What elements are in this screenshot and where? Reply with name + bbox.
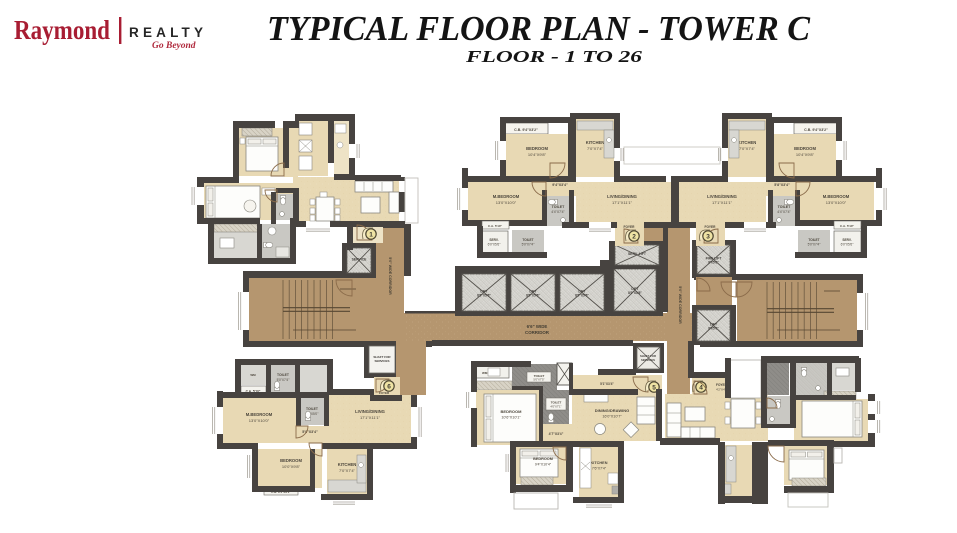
svg-text:C.A. 5'10": C.A. 5'10" <box>488 224 503 228</box>
svg-text:13'0"X10'0": 13'0"X10'0" <box>496 200 517 205</box>
svg-text:10'4"X9'8": 10'4"X9'8" <box>528 152 547 157</box>
svg-text:KITCHEN: KITCHEN <box>338 462 357 467</box>
svg-text:4: 4 <box>699 384 703 391</box>
svg-text:5: 5 <box>652 384 656 391</box>
svg-text:C.B. 9'4"X3'2": C.B. 9'4"X3'2" <box>514 128 538 132</box>
svg-text:2: 2 <box>632 233 636 240</box>
svg-text:8'X5'6": 8'X5'6" <box>708 261 719 265</box>
svg-text:5'8"X3'4": 5'8"X3'4" <box>302 430 318 434</box>
svg-text:TOILET: TOILET <box>522 238 533 242</box>
svg-text:4'0"X7'1": 4'0"X7'1" <box>550 404 561 408</box>
svg-text:FLOOR - 1 TO 26: FLOOR - 1 TO 26 <box>465 47 643 66</box>
svg-text:17'1"X11'1": 17'1"X11'1" <box>712 200 733 205</box>
svg-text:TOILET: TOILET <box>306 407 319 411</box>
svg-text:5'0" WIDE CORRIDOR: 5'0" WIDE CORRIDOR <box>388 257 392 295</box>
svg-text:KITCHEN: KITCHEN <box>738 140 757 145</box>
svg-text:8'0"X5'6": 8'0"X5'6" <box>477 294 491 298</box>
svg-text:7'6"X7'4": 7'6"X7'4" <box>592 467 607 471</box>
svg-text:4'4"X7'4": 4'4"X7'4" <box>551 210 565 214</box>
svg-text:5'0"X7'5": 5'0"X7'5" <box>533 378 544 382</box>
svg-text:Raymond: Raymond <box>14 15 110 45</box>
svg-text:SERVICES: SERVICES <box>641 358 655 362</box>
svg-text:FOYER: FOYER <box>705 225 717 229</box>
svg-text:CORRIDOR: CORRIDOR <box>525 330 550 335</box>
svg-text:TOILET: TOILET <box>277 373 290 377</box>
svg-text:BEDROOM: BEDROOM <box>526 146 548 151</box>
svg-text:17'1"X11'1": 17'1"X11'1" <box>360 415 381 420</box>
svg-text:5'0"X7'4": 5'0"X7'4" <box>522 243 535 247</box>
svg-text:M.BEDROOM: M.BEDROOM <box>823 194 850 199</box>
svg-text:8'X5'6": 8'X5'6" <box>708 327 719 331</box>
svg-text:BEDROOM: BEDROOM <box>280 458 302 463</box>
svg-text:16'0"X10'7": 16'0"X10'7" <box>602 415 622 419</box>
svg-text:Go Beyond: Go Beyond <box>152 41 196 51</box>
svg-text:13'0"X10'0": 13'0"X10'0" <box>249 418 270 423</box>
svg-text:TOILET: TOILET <box>808 238 819 242</box>
svg-text:C.A. 5'10": C.A. 5'10" <box>840 224 855 228</box>
svg-text:5'0" WIDE CORRIDOR: 5'0" WIDE CORRIDOR <box>678 286 682 324</box>
svg-text:5'1"X3'4": 5'1"X3'4" <box>600 382 614 386</box>
svg-text:TOILET: TOILET <box>552 205 566 209</box>
svg-text:8'0"X5'6": 8'0"X5'6" <box>628 291 642 295</box>
svg-text:FOYER: FOYER <box>624 225 636 229</box>
svg-text:KITCHEN: KITCHEN <box>591 461 608 465</box>
svg-text:6'6" WIDE: 6'6" WIDE <box>527 324 548 329</box>
svg-text:7'0"X7'4": 7'0"X7'4" <box>739 146 756 151</box>
svg-text:M.BEDROOM: M.BEDROOM <box>493 194 520 199</box>
svg-text:DINING/DRAWING: DINING/DRAWING <box>595 408 629 413</box>
svg-text:BEDROOM: BEDROOM <box>794 146 816 151</box>
svg-text:17'1"X11'1": 17'1"X11'1" <box>612 200 633 205</box>
svg-text:4'7"X3'4": 4'7"X3'4" <box>549 432 564 436</box>
svg-text:SERV.: SERV. <box>489 238 498 242</box>
svg-text:8'0"X5'6": 8'0"X5'6" <box>526 294 540 298</box>
svg-text:SERVICES: SERVICES <box>374 359 389 363</box>
svg-text:10'6"X10'1": 10'6"X10'1" <box>501 416 521 420</box>
svg-text:8'0"X5'6": 8'0"X5'6" <box>575 294 589 298</box>
svg-text:LIVING/DINING: LIVING/DINING <box>355 409 385 414</box>
svg-text:10'4"X9'8": 10'4"X9'8" <box>796 152 815 157</box>
svg-text:SERV.: SERV. <box>842 238 851 242</box>
svg-text:TOILET: TOILET <box>778 205 792 209</box>
svg-text:13'0"X10'0": 13'0"X10'0" <box>826 200 847 205</box>
svg-text:REALTY: REALTY <box>129 25 207 40</box>
svg-text:WM: WM <box>482 371 488 375</box>
svg-text:4'4"X7'4": 4'4"X7'4" <box>777 210 791 214</box>
svg-text:6'0"X5'6": 6'0"X5'6" <box>841 243 854 247</box>
svg-text:C.B. 9'4"X3'2": C.B. 9'4"X3'2" <box>804 128 828 132</box>
svg-text:KITCHEN: KITCHEN <box>586 140 605 145</box>
svg-text:5'8"X3'4": 5'8"X3'4" <box>774 183 790 187</box>
svg-text:5'0"X7'4": 5'0"X7'4" <box>808 243 821 247</box>
svg-text:LIVING/DINING: LIVING/DINING <box>607 194 637 199</box>
svg-text:6'0"X5'6": 6'0"X5'6" <box>488 243 501 247</box>
svg-text:SERVICE: SERVICE <box>352 258 368 262</box>
svg-text:10'0"X9'8": 10'0"X9'8" <box>282 464 301 469</box>
svg-text:BEDROOM: BEDROOM <box>533 457 553 461</box>
svg-text:9'4"X10'4": 9'4"X10'4" <box>535 463 552 467</box>
svg-text:9'4"X3'4": 9'4"X3'4" <box>552 183 568 187</box>
svg-text:M.BEDROOM: M.BEDROOM <box>246 412 273 417</box>
svg-text:LIVING/DINING: LIVING/DINING <box>707 194 737 199</box>
svg-text:SERV. LIFT: SERV. LIFT <box>628 252 647 256</box>
svg-text:7'0"X7'4": 7'0"X7'4" <box>339 468 356 473</box>
svg-text:BEDROOM: BEDROOM <box>501 409 523 414</box>
svg-text:7'0"X7'4": 7'0"X7'4" <box>587 146 604 151</box>
svg-text:TYPICAL FLOOR PLAN - TOWER C: TYPICAL FLOOR PLAN - TOWER C <box>267 9 811 48</box>
svg-text:3: 3 <box>706 233 710 240</box>
svg-text:6: 6 <box>387 383 391 390</box>
svg-text:WM: WM <box>250 373 256 377</box>
svg-text:1: 1 <box>369 231 373 238</box>
